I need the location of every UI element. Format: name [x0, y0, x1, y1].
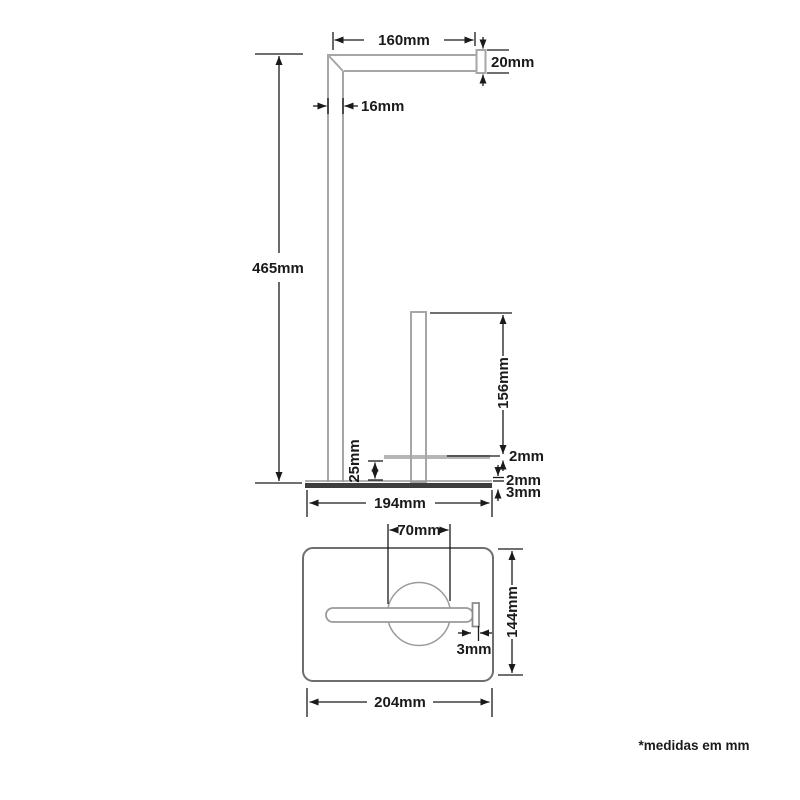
dim-roll-diameter-label: 70mm — [397, 522, 440, 539]
roll-arm-end-cap-top — [473, 603, 480, 627]
dim-rest-height-label: 25mm — [346, 439, 363, 482]
dim-rest-height: 25mm — [346, 439, 383, 482]
technical-drawing-page: 160mm 20mm 16mm 465mm 156mm 2mm — [0, 0, 800, 800]
arm-corner-chamfer — [328, 55, 343, 71]
dim-rest-plate-thickness-label: 2mm — [509, 448, 544, 465]
dim-base-thicknesses: 2mm 3mm — [493, 465, 541, 501]
dim-base-plate-thickness-label: 3mm — [506, 484, 541, 501]
dim-arm-end-thickness-label: 3mm — [456, 641, 491, 658]
dim-post-width: 16mm — [313, 98, 404, 115]
dim-arm-length: 160mm — [333, 32, 475, 50]
dim-arm-length-label: 160mm — [378, 32, 430, 49]
dim-total-height: 465mm — [252, 54, 304, 483]
dim-base-depth-label: 144mm — [504, 586, 521, 638]
dim-total-height-label: 465mm — [252, 260, 304, 277]
dim-rest-plate-thickness: 2mm — [447, 448, 544, 471]
front-view — [305, 50, 492, 488]
base-plate — [305, 483, 492, 488]
dim-base-depth: 144mm — [498, 549, 523, 675]
dim-base-length: 204mm — [307, 688, 492, 717]
dim-post-width-label: 16mm — [361, 98, 404, 115]
roll-arm-top — [326, 608, 473, 622]
arm-end-cap — [477, 50, 486, 73]
dim-spare-post-height: 156mm — [430, 313, 512, 454]
dim-base-width: 194mm — [307, 490, 492, 517]
dim-base-width-label: 194mm — [374, 495, 426, 512]
dim-base-length-label: 204mm — [374, 694, 426, 711]
dim-spare-post-height-label: 156mm — [495, 357, 512, 409]
top-view — [303, 548, 493, 681]
paper-holder-drawing: 160mm 20mm 16mm 465mm 156mm 2mm — [0, 0, 800, 800]
dim-arm-height: 20mm — [483, 37, 534, 86]
units-footnote: *medidas em mm — [638, 738, 749, 753]
dim-arm-height-label: 20mm — [491, 54, 534, 71]
